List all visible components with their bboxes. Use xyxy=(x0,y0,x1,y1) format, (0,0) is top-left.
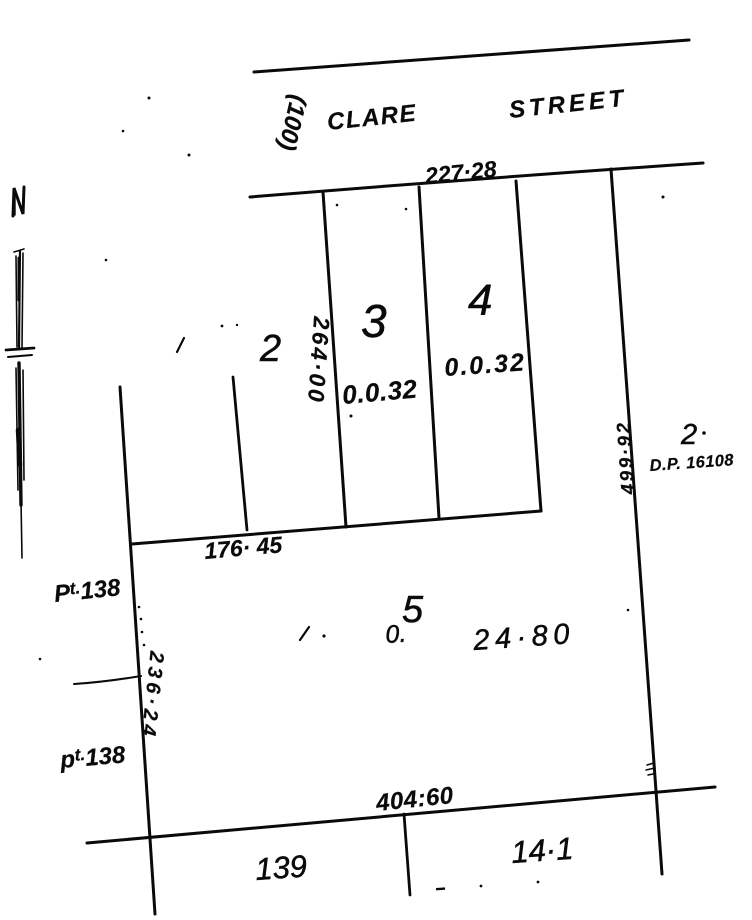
svg-text:D.P. 16108: D.P. 16108 xyxy=(649,451,735,475)
svg-text:STREET: STREET xyxy=(508,85,629,124)
svg-text:(100): (100) xyxy=(273,92,312,153)
svg-text:2: 2 xyxy=(259,328,281,370)
svg-text:3: 3 xyxy=(361,295,387,347)
svg-text:Pt.138: Pt.138 xyxy=(53,574,123,608)
svg-text:24·80: 24·80 xyxy=(471,618,576,657)
svg-text:0.0.32: 0.0.32 xyxy=(341,374,419,410)
svg-text:499·92: 499·92 xyxy=(613,420,639,496)
svg-text:264·00: 264·00 xyxy=(303,315,334,406)
svg-text:pt.138: pt.138 xyxy=(58,741,127,774)
svg-text:236·24: 236·24 xyxy=(136,649,167,741)
svg-text:14·1: 14·1 xyxy=(510,831,574,870)
svg-text:176· 45: 176· 45 xyxy=(203,531,284,564)
svg-text:139: 139 xyxy=(254,848,308,887)
svg-text:CLARE: CLARE xyxy=(326,100,419,136)
svg-text:0.: 0. xyxy=(384,620,407,649)
svg-text:227·28: 227·28 xyxy=(423,156,498,189)
svg-text:4: 4 xyxy=(468,276,492,325)
svg-text:0.0.32: 0.0.32 xyxy=(443,348,526,382)
svg-text:2: 2 xyxy=(680,419,697,451)
